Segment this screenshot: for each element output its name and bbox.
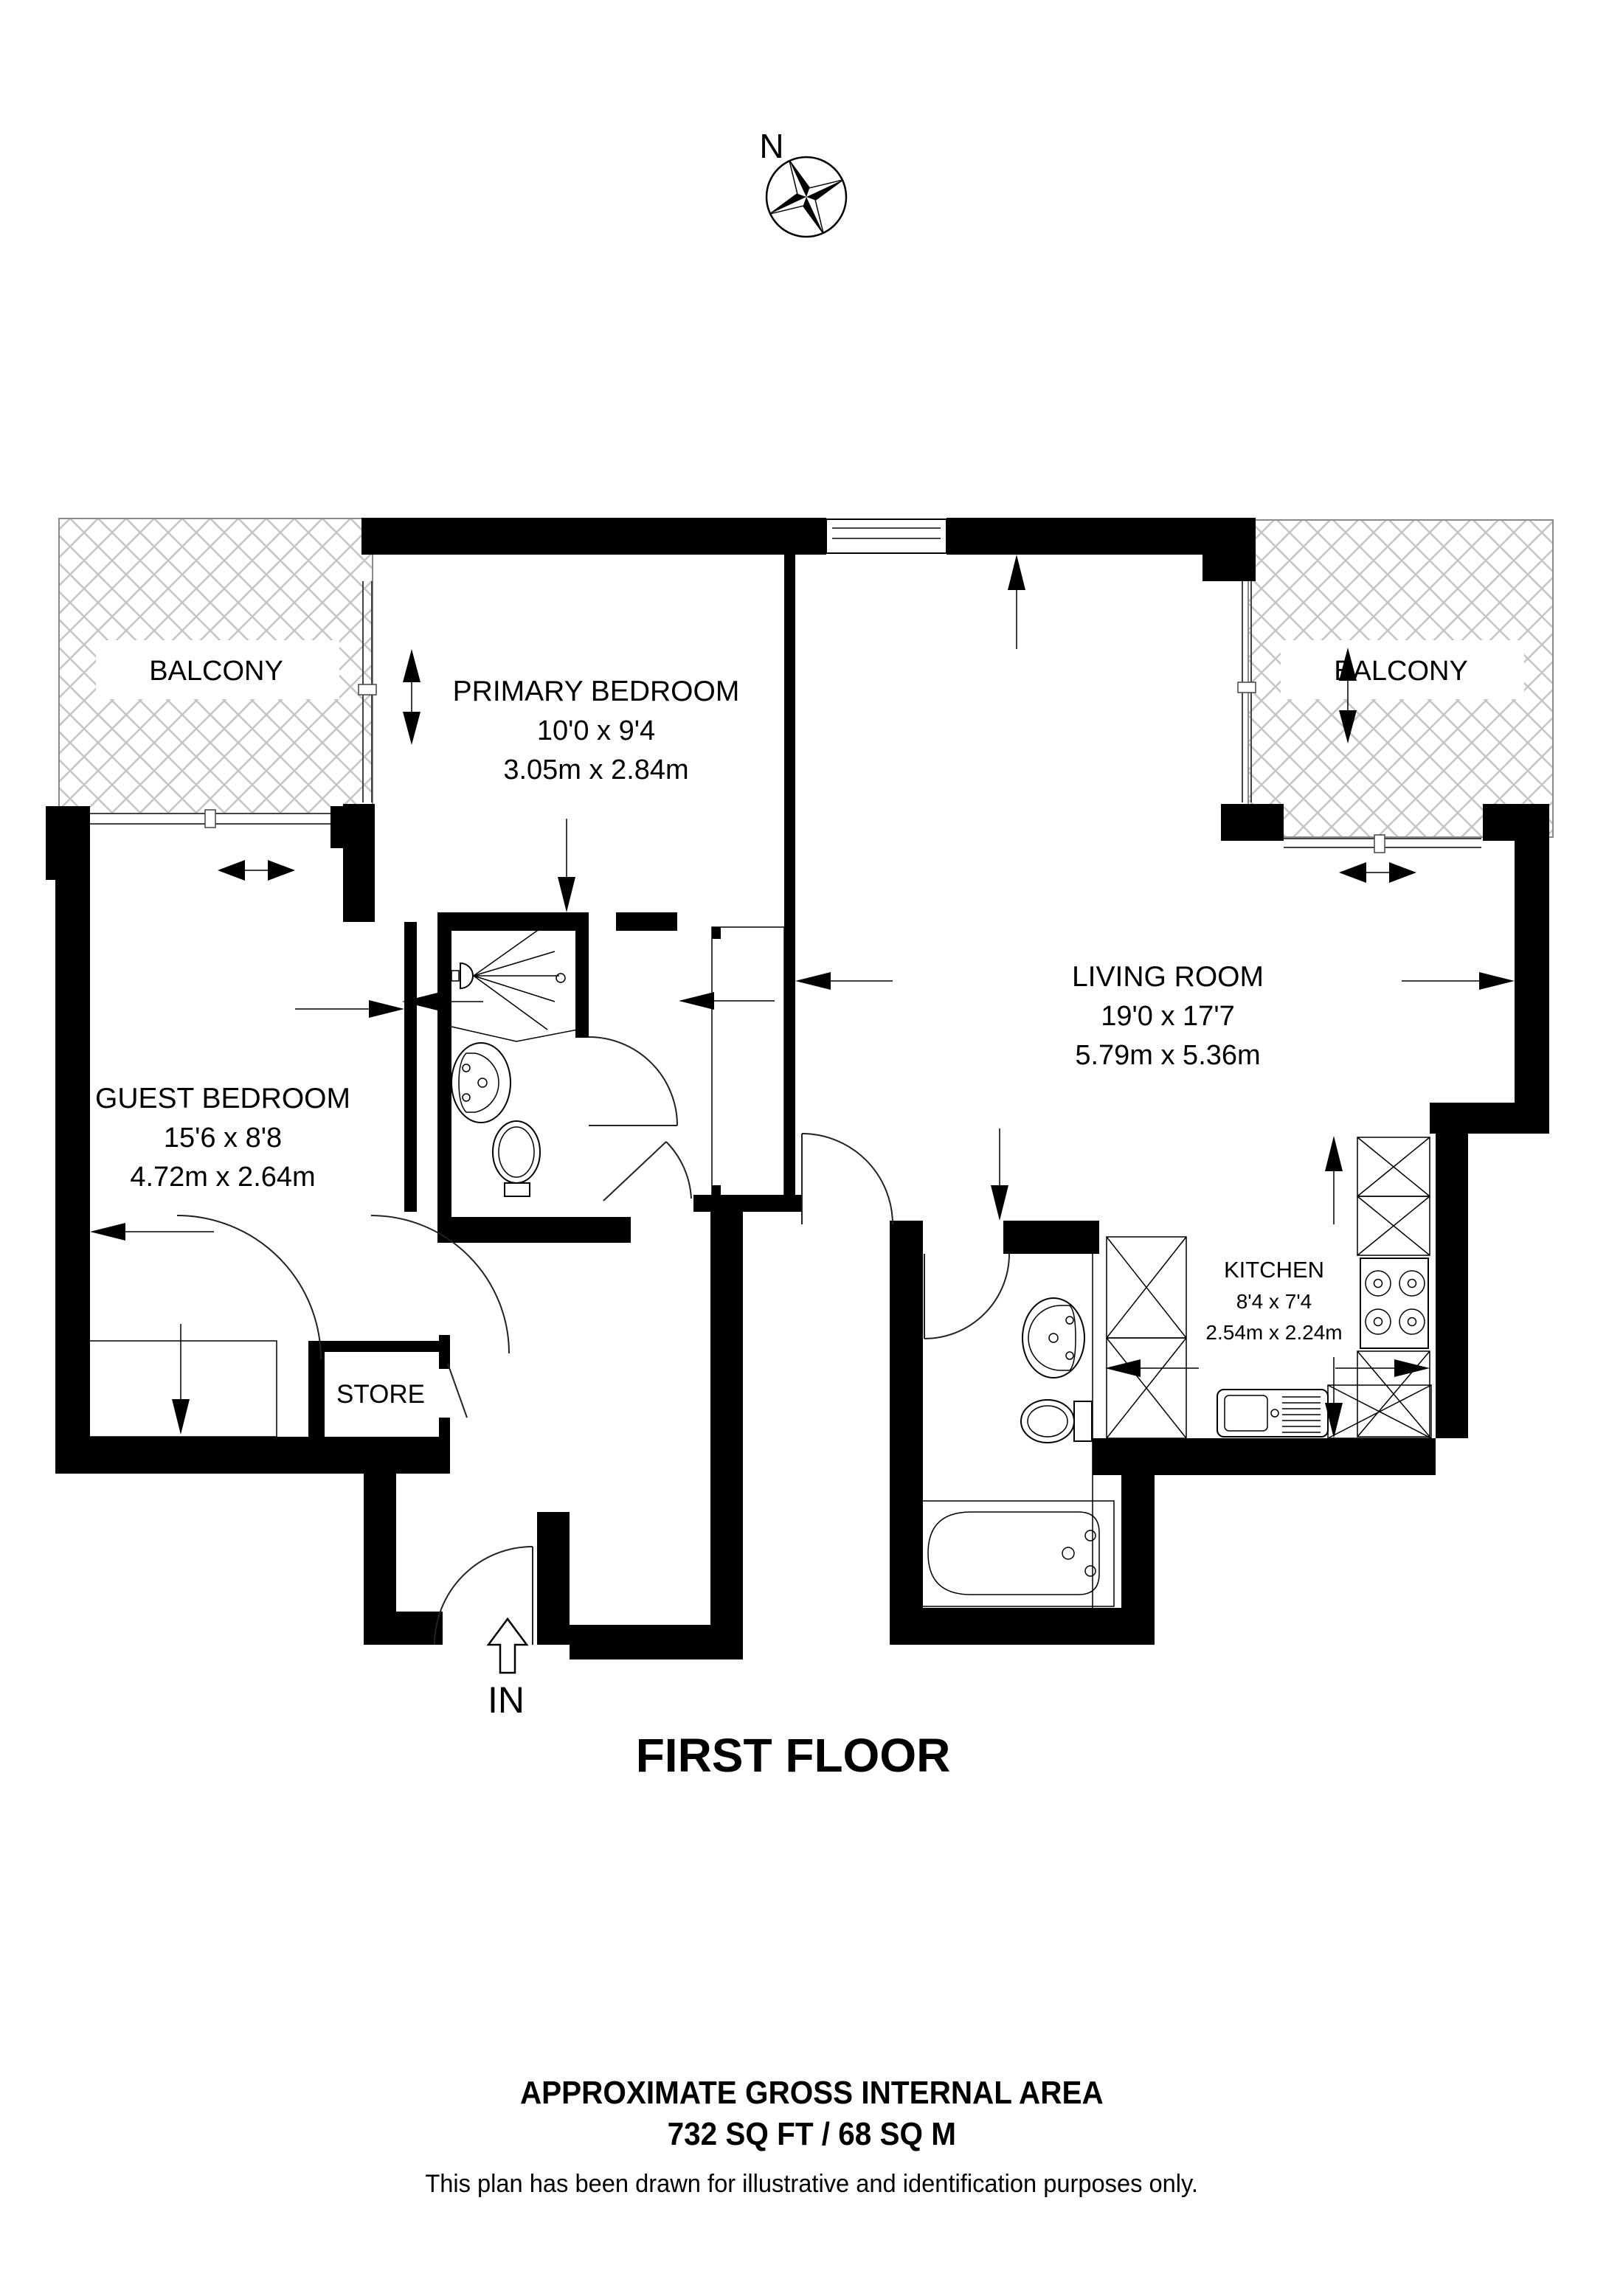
balcony-left: BALCONY xyxy=(59,518,373,814)
compass-icon: N xyxy=(759,127,846,237)
guest-bedroom-metric: 4.72m x 2.64m xyxy=(130,1162,315,1193)
footer-area-title: APPROXIMATE GROSS INTERNAL AREA xyxy=(520,2074,1104,2110)
footer-area-value: 732 SQ FT / 68 SQ M xyxy=(668,2115,956,2151)
bathtub-icon xyxy=(913,1501,1114,1606)
entry-door xyxy=(435,1547,533,1645)
entry-label: IN xyxy=(488,1679,525,1721)
primary-bedroom-name: PRIMARY BEDROOM xyxy=(453,676,740,707)
ensuite-toilet-icon xyxy=(493,1121,540,1196)
store-label: STORE xyxy=(336,1380,425,1409)
slide-arrows-balcony-left xyxy=(218,860,295,881)
living-room-door xyxy=(802,1134,893,1224)
cupboard xyxy=(712,927,784,1197)
arrow-kitchen-left xyxy=(1105,1359,1199,1377)
arrow-living-right xyxy=(1402,972,1515,990)
guest-bedroom-imperial: 15'6 x 8'8 xyxy=(164,1123,282,1154)
balcony-right: BALCONY xyxy=(1248,520,1553,837)
kitchen-imperial: 8'4 x 7'4 xyxy=(1236,1290,1312,1313)
ensuite-basin-icon xyxy=(451,1043,511,1123)
entry-arrow-icon xyxy=(488,1619,527,1673)
primary-bedroom-imperial: 10'0 x 9'4 xyxy=(537,715,655,746)
living-room-name: LIVING ROOM xyxy=(1072,961,1264,993)
guest-bedroom-label: GUEST BEDROOM 15'6 x 8'8 4.72m x 2.64m xyxy=(95,1083,350,1193)
kitchen-name: KITCHEN xyxy=(1224,1257,1324,1283)
sink-icon xyxy=(1217,1385,1431,1438)
balcony-left-label: BALCONY xyxy=(149,656,283,687)
arrow-kitchen-right xyxy=(1335,1359,1430,1377)
floor-title: FIRST FLOOR xyxy=(636,1729,951,1782)
bathroom-toilet-icon xyxy=(1021,1400,1092,1443)
arrow-primary-bottom xyxy=(558,819,575,912)
arrow-guest-left xyxy=(90,1223,214,1241)
bathroom-door xyxy=(924,1254,1009,1339)
hob-icon xyxy=(1360,1258,1428,1348)
compass-north-label: N xyxy=(759,127,783,165)
kitchen-metric: 2.54m x 2.24m xyxy=(1205,1321,1342,1344)
living-room-metric: 5.79m x 5.36m xyxy=(1075,1040,1260,1071)
store-door xyxy=(448,1364,467,1418)
slide-arrows-balcony-right xyxy=(1339,862,1416,883)
arrow-living-room-top xyxy=(1008,555,1025,649)
floorplan-drawing: N BALCONY BALCONY xyxy=(0,0,1623,2296)
ensuite-door xyxy=(589,1037,677,1126)
slide-arrows-primary-window xyxy=(403,649,421,745)
footer-disclaimer: This plan has been drawn for illustrativ… xyxy=(425,2170,1198,2198)
shower-icon xyxy=(451,923,578,1041)
kitchen-label: KITCHEN 8'4 x 7'4 2.54m x 2.24m xyxy=(1205,1257,1342,1344)
primary-bedroom-metric: 3.05m x 2.84m xyxy=(503,755,688,785)
primary-bedroom-label: PRIMARY BEDROOM 10'0 x 9'4 3.05m x 2.84m xyxy=(453,676,740,785)
window-top-living-room xyxy=(826,519,947,553)
kitchen-counter-left xyxy=(1107,1237,1186,1438)
hall-inner-door xyxy=(603,1142,691,1201)
living-room-imperial: 19'0 x 17'7 xyxy=(1101,1001,1234,1032)
doors xyxy=(177,1037,1009,1645)
footer: APPROXIMATE GROSS INTERNAL AREA 732 SQ F… xyxy=(425,2074,1198,2198)
arrow-living-room-bottom xyxy=(991,1128,1008,1221)
floorplan-page: N BALCONY BALCONY xyxy=(0,0,1623,2296)
arrow-kitchen-top xyxy=(1325,1136,1343,1224)
guest-bedroom-name: GUEST BEDROOM xyxy=(95,1083,350,1114)
arrow-guest-right xyxy=(295,1000,404,1018)
bathroom-basin-icon xyxy=(1022,1298,1084,1378)
living-room-label: LIVING ROOM 19'0 x 17'7 5.79m x 5.36m xyxy=(1072,961,1264,1071)
arrow-primary-right xyxy=(679,992,775,1010)
arrow-living-left xyxy=(795,972,893,990)
